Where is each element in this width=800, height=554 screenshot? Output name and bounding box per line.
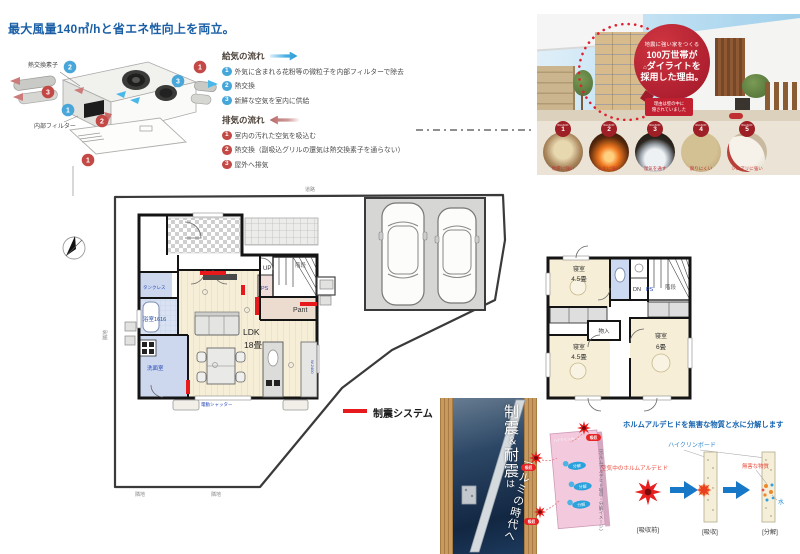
ldk-label: LDK [243,327,260,337]
step-text: 熱交換 [235,81,255,91]
svg-text:[吸収前]: [吸収前] [637,526,659,534]
step-text: 室内の汚れた空気を吸込む [235,131,317,141]
bedroom3-label: 寝室 [655,332,667,340]
formaldehyde-title: ホルムアルデヒドを無害な物質と水に分解します [623,420,783,429]
supply-item: 2 熱交換 [222,81,454,91]
exhaust-flow-title: 排気の流れ [222,114,265,126]
heat-exchanger-label: 熱交換素子 [28,61,58,69]
bedroom1-size: 4.5畳 [571,275,587,283]
reason-badge: REASON1 [555,121,571,137]
entry-tile [167,218,240,253]
step-number: 1 [222,67,232,77]
water-label: 水 [778,498,784,506]
ceiling-panel [70,118,186,154]
reason-number: 4 [699,127,703,134]
flyer-page: { "title": "最大風量140㎥/hと省エネ性向上を両立。", "num… [0,0,800,554]
ldk-size-label: 18畳 [244,340,262,350]
svg-text:1: 1 [198,65,202,72]
reason-number: 5 [745,127,749,134]
adjacent-label: 隣地 [135,491,145,498]
exhaust-item: 2 熱交換（副吸込グリルの還気は熱交換素子を通らない） [222,145,454,155]
bath-label: 浴室1616 [143,315,166,323]
filter-label: 内部フィルター [34,122,76,130]
north-arrow-icon [63,236,85,259]
deck-grid [245,218,318,245]
promo-badge: 地震に強い家をつくる 100万世帯が ⌂ダイライトを 採用した理由。 [634,24,710,100]
legend-damper-swatch [343,409,367,413]
supply-flow-heading: 給気の流れ [222,50,454,62]
board-name-label: ハイクリンボード [668,441,716,449]
reason-number: 2 [607,127,611,134]
step-text: 新鮮な空気を室内に供給 [235,96,310,106]
banner-word: 制震 [502,404,518,436]
stage-labels: [吸収前] [吸収] [分解] [637,526,778,536]
svg-text:3: 3 [176,79,180,86]
step-text: 外気に含まれる花粉等の微粒子を内部フィルターで除去 [235,67,404,77]
harmless-label: 無害な物質 [742,462,770,470]
fan-icon [122,70,150,90]
promo-ribbon: 理由は壁の中に 隠されていました [645,98,693,116]
bedroom2-label: 寝室 [573,343,585,351]
ps-label-2f: PS [646,287,654,293]
badge-line: 採用した理由。 [640,72,703,83]
reason-badge: REASON5 [739,121,755,137]
banner-word: ＆ [505,436,516,447]
svg-text:吸収: 吸収 [525,465,533,470]
reason-number: 3 [653,127,657,134]
floor-plan-2f: 寝室 4.5畳 寝室 4.5畳 寝室 6畳 物入 DN PS 階段 [535,243,705,418]
step-text: 熱交換（副吸込グリルの還気は熱交換素子を通らない） [235,145,405,155]
reason-badge: REASON3 [647,121,663,137]
exhaust-flow-arrow-icon [270,116,300,125]
ventilation-unit-diagram: 熱交換素子 内部フィルター 2 3 1 1 3 2 1 [8,48,220,174]
bedroom3-size: 6畳 [656,343,667,351]
supply-item: 3 新鮮な空気を室内に供給 [222,96,454,106]
arrow-right-icon [723,481,750,499]
stairs-label: 階段 [295,261,307,269]
w2400-label: W.2400 [310,360,315,374]
step-number: 2 [222,81,232,91]
car [379,203,427,305]
bedroom1-label: 寝室 [573,265,585,273]
dn-label: DN [633,287,641,293]
supply-flow-title: 給気の流れ [222,50,265,62]
red-car [729,113,743,119]
badge-line: 100万世帯が [646,50,697,61]
stairs-label-2f: 階段 [665,283,677,291]
fan-icon [155,85,177,101]
leader-line [416,129,534,131]
board-note-vertical: （ホルムアルデヒド吸収・分解イメージ） [598,446,604,533]
board-decomposed [762,452,775,522]
tankless-label: タンクレス [143,284,166,291]
svg-text:吸収: 吸収 [528,519,536,524]
reason-badge: REASON4 [693,121,709,137]
page-title: 最大風量140㎥/hと省エネ性向上を両立。 [8,20,235,37]
car [435,208,479,303]
shutter-label: 電動シャッター [201,401,233,408]
svg-text:[吸収]: [吸収] [702,529,718,536]
supply-flow-arrow-icon [270,52,298,61]
ps-label: PS [261,286,269,292]
sofa [195,312,239,335]
legend-damper-label: 制震システム [373,407,433,420]
airborne-label: 空気中のホルムアルデヒド [601,464,668,472]
wood-siding [715,38,745,96]
badge-small-text: 地震に強い家をつくる [645,41,700,48]
sink [635,264,643,272]
washroom-label: 洗面室 [147,364,164,372]
svg-text:吸収: 吸収 [590,435,598,440]
appliance [140,340,156,356]
adjacent-label: 隣地 [211,491,221,498]
svg-text:2: 2 [100,119,104,126]
road-label: 道路 [305,186,315,193]
supply-item: 1 外気に含まれる花粉等の微粒子を内部フィルターで除去 [222,67,454,77]
airflow-description: 給気の流れ 1 外気に含まれる花粉等の微粒子を内部フィルターで除去 2 熱交換 … [222,49,454,170]
formaldehyde-diagram: ハイクリンボード 分解 分解 分解 吸収 吸収 吸収 ホルムアルデヒドを無害な物… [520,408,800,554]
exhaust-item: 1 室内の汚れた空気を吸込む [222,131,454,141]
svg-text:[分解]: [分解] [762,528,778,536]
svg-text:分解: 分解 [573,462,581,469]
ribbon-text: 隠されていました [652,107,686,113]
pantry-label: Pant [293,307,307,314]
closet-label: 物入 [598,327,610,335]
terrace-step [283,400,308,410]
step-number: 2 [222,145,232,155]
svg-text:分解: 分解 [578,483,586,490]
exhaust-arrow-icon [13,93,23,101]
svg-text:分解: 分解 [577,501,585,508]
arrow-right-icon [670,481,698,499]
terrace-step [173,400,199,410]
badge-line: ⌂ダイライトを [643,61,701,73]
step-number: 3 [222,96,232,106]
parking-area [365,198,485,310]
svg-text:1: 1 [66,108,70,115]
adjacent-label: 隣地 [102,330,109,340]
reason-badge: REASON2 [601,121,617,137]
reason-number: 1 [561,127,565,134]
pantry [260,297,317,320]
bedroom2-size: 4.5畳 [571,353,587,361]
reason-caption: シロアリに強い [717,166,777,172]
svg-text:3: 3 [46,90,50,97]
up-label: UP [263,266,271,272]
board-absorbing [696,452,717,522]
exhaust-flow-heading: 排気の流れ [222,114,454,126]
toilet-fixture [615,268,625,282]
dailite-promo-image: 地震に強い家をつくる 100万世帯が ⌂ダイライトを 採用した理由。 理由は壁の… [537,14,800,175]
step-number: 1 [222,131,232,141]
stairs-2f [648,258,690,300]
svg-text:2: 2 [68,65,72,72]
